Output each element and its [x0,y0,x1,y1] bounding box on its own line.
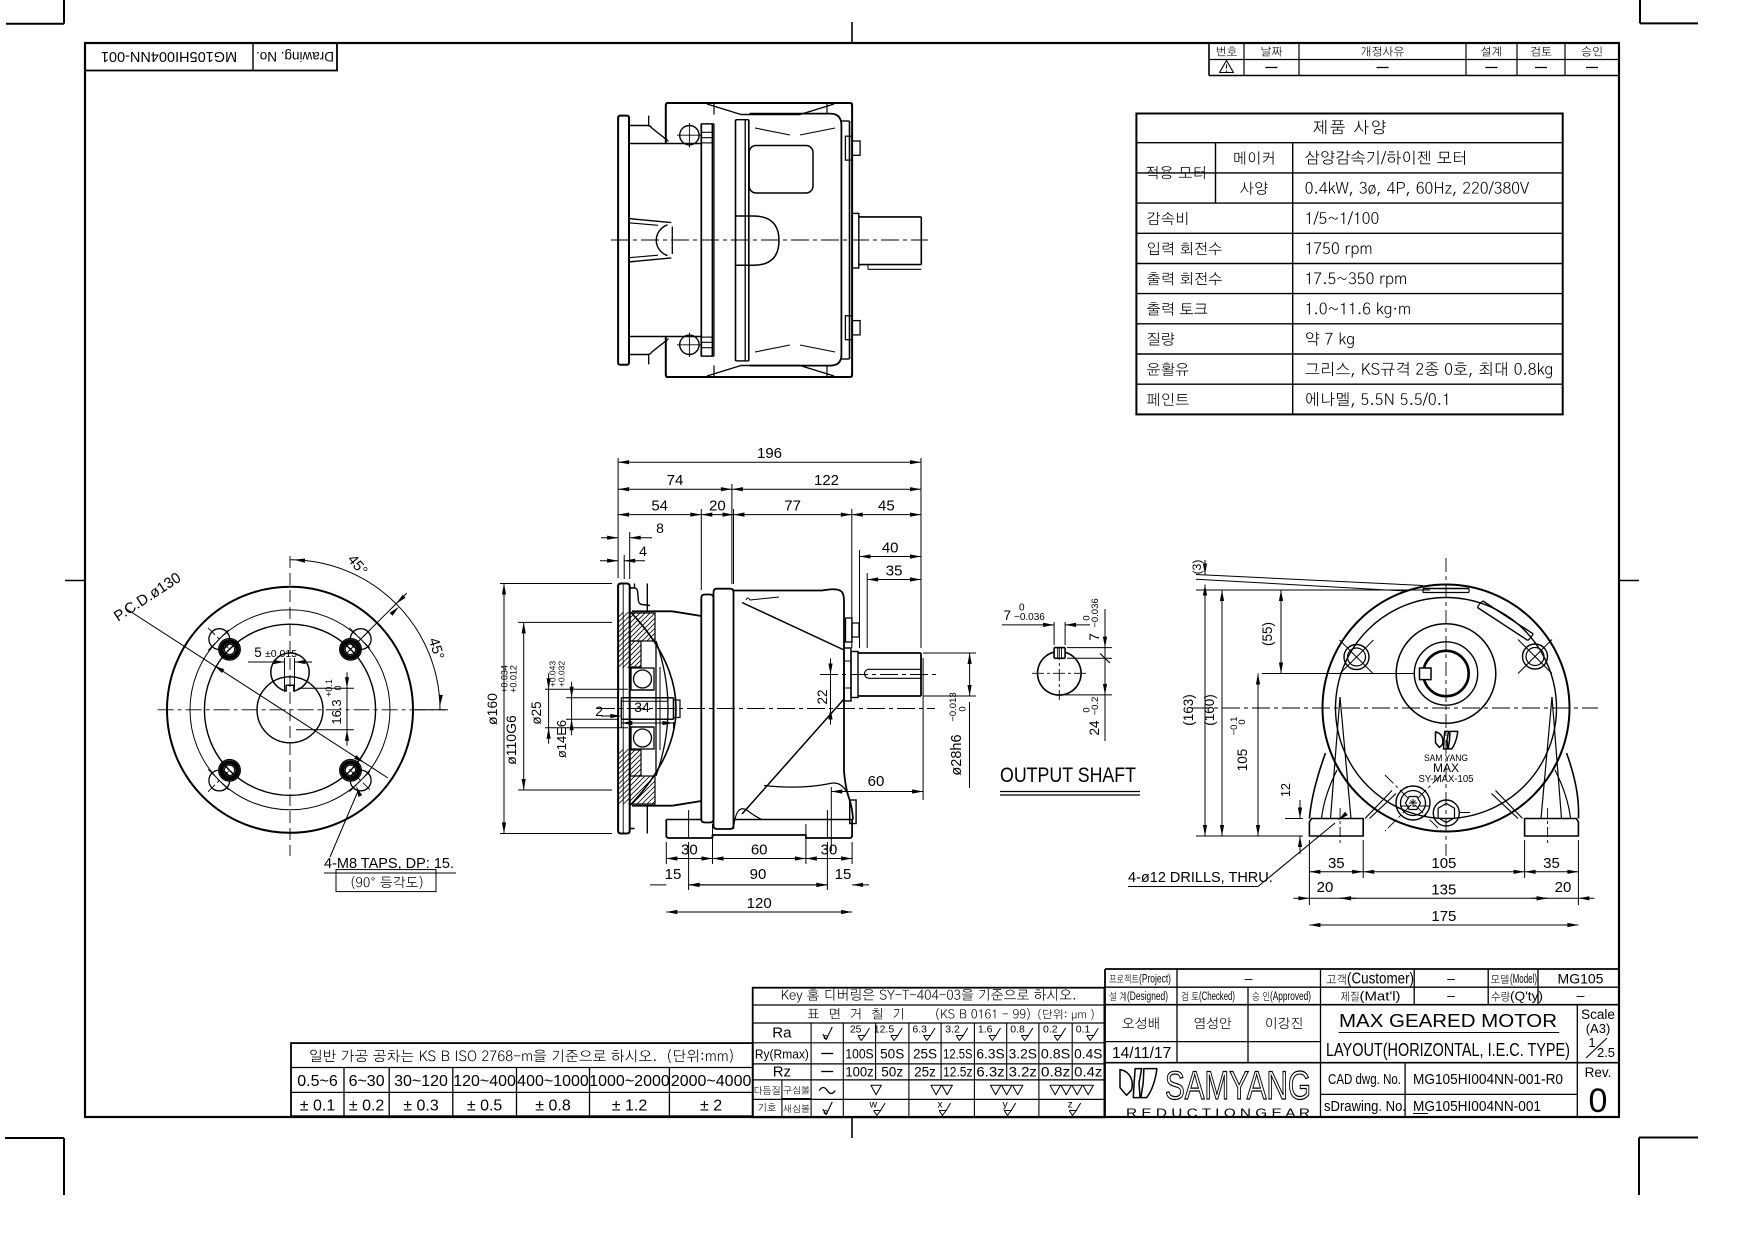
svg-text:Rev.: Rev. [1585,1065,1612,1080]
svg-text:175: 175 [1431,908,1456,925]
svg-text:16.3: 16.3 [329,699,344,724]
svg-text:50z: 50z [881,1065,903,1080]
svg-text:0: 0 [1082,707,1093,712]
svg-text:ø160: ø160 [484,693,500,725]
svg-text:Drawing. No.: Drawing. No. [256,49,334,64]
svg-text:4-ø12 DRILLS, THRU.: 4-ø12 DRILLS, THRU. [1128,870,1273,886]
svg-text:0.8S: 0.8S [1041,1047,1070,1062]
svg-text:105: 105 [1235,749,1250,772]
svg-text:ø25: ø25 [529,701,544,724]
svg-text:± 0.2: ± 0.2 [349,1098,385,1115]
svg-text:54: 54 [651,498,668,515]
svg-text:35: 35 [886,563,903,580]
svg-text:± 0.1: ± 0.1 [300,1098,336,1115]
svg-text:0: 0 [1237,719,1248,724]
svg-text:30: 30 [681,842,698,859]
svg-text:35: 35 [1328,855,1345,872]
svg-text:ø28h6: ø28h6 [949,734,965,775]
svg-text:(Mat'l): (Mat'l) [1360,989,1401,1004]
svg-text:± 0.3: ± 0.3 [403,1098,439,1115]
svg-text:(55): (55) [1260,622,1275,646]
svg-text:ø110G6: ø110G6 [503,715,519,765]
svg-text:Rz: Rz [773,1064,791,1081]
svg-text:0.8: 0.8 [1010,1024,1025,1036]
svg-text:+0.012: +0.012 [509,665,519,693]
svg-text:50S: 50S [880,1047,904,1062]
svg-text:35: 35 [1543,855,1560,872]
svg-text:R E D U C T I O N G E A R: R E D U C T I O N G E A R [1126,1106,1310,1120]
svg-text:25S: 25S [913,1047,937,1062]
svg-text:(163): (163) [1181,694,1196,726]
svg-text:14/11/17: 14/11/17 [1112,1045,1171,1062]
svg-text:(Model): (Model) [1510,972,1537,986]
svg-text:1.6: 1.6 [978,1024,993,1036]
svg-text:+0.032: +0.032 [557,661,567,688]
svg-text:0.4S: 0.4S [1074,1047,1102,1062]
svg-text:Scale: Scale [1581,1007,1615,1022]
svg-text:6~30: 6~30 [349,1073,385,1090]
svg-text:0.5~6: 0.5~6 [297,1073,338,1090]
svg-text:MG105HI004NN-001: MG105HI004NN-001 [101,48,237,64]
svg-text:± 2: ± 2 [700,1098,722,1115]
svg-text:± 1.2: ± 1.2 [612,1098,648,1115]
svg-text:25z: 25z [914,1065,936,1080]
svg-text:20: 20 [1317,879,1334,896]
svg-text:100z: 100z [845,1065,874,1080]
svg-text:CAD dwg. No.: CAD dwg. No. [1328,1072,1401,1088]
svg-text:6.3: 6.3 [912,1024,927,1036]
svg-text:400~1000: 400~1000 [517,1073,589,1090]
svg-text:Ry(Rmax): Ry(Rmax) [755,1047,809,1062]
svg-text:3.2S: 3.2S [1009,1047,1037,1062]
svg-text:0.4z: 0.4z [1074,1065,1102,1080]
svg-text:7: 7 [1003,608,1011,623]
svg-text:(3): (3) [1190,560,1204,575]
svg-text:MAX GEARED MOTOR: MAX GEARED MOTOR [1339,1010,1557,1031]
svg-text:34: 34 [634,699,650,715]
svg-text:x: x [937,1099,943,1111]
svg-text:MG105: MG105 [1558,971,1604,987]
svg-text:7: 7 [1087,633,1102,641]
svg-text:(Customer): (Customer) [1347,971,1414,988]
svg-text:(160): (160) [1202,694,1217,726]
svg-text:2: 2 [595,703,603,719]
svg-text:(Designed): (Designed) [1127,991,1168,1003]
svg-text:135: 135 [1431,881,1456,898]
svg-text:24: 24 [1087,720,1102,736]
svg-text:MG105HI004NN-001: MG105HI004NN-001 [1413,1099,1541,1115]
svg-text:196: 196 [757,445,782,462]
svg-text:60: 60 [868,773,885,790]
svg-text:77: 77 [784,498,801,515]
svg-text:–: – [1245,970,1253,986]
svg-text:0.8z: 0.8z [1041,1065,1071,1080]
svg-text:60: 60 [751,842,768,859]
svg-text:Ra: Ra [772,1025,792,1042]
svg-text:OUTPUT SHAFT: OUTPUT SHAFT [1000,763,1136,787]
svg-text:20: 20 [1555,879,1572,896]
svg-text:SAMYANG: SAMYANG [1165,1064,1311,1108]
svg-text:6.3S: 6.3S [976,1047,1004,1062]
svg-text:12: 12 [1279,783,1293,797]
svg-text:12.5z: 12.5z [943,1065,973,1080]
svg-text:74: 74 [667,472,684,489]
svg-text:22: 22 [815,689,830,704]
svg-text:120~400: 120~400 [453,1073,516,1090]
svg-text:20: 20 [709,498,726,515]
svg-text:15: 15 [665,866,682,883]
svg-text:0: 0 [1589,1082,1608,1120]
svg-text:–: – [1577,987,1585,1003]
svg-text:1000~2000: 1000~2000 [589,1073,670,1090]
svg-text:120: 120 [747,895,772,912]
svg-text:–: – [1447,970,1455,986]
svg-text:±0.015: ±0.015 [265,648,297,660]
svg-text:1: 1 [1588,1035,1595,1050]
svg-text:LAYOUT(HORIZONTAL, I.E.C. TYPE: LAYOUT(HORIZONTAL, I.E.C. TYPE) [1326,1040,1570,1060]
svg-text:3.2z: 3.2z [1009,1065,1037,1080]
svg-text:30~120: 30~120 [394,1073,448,1090]
svg-text:45: 45 [878,498,895,515]
svg-text:−0.036: −0.036 [1090,598,1101,627]
svg-text:122: 122 [814,472,839,489]
svg-text:15: 15 [835,866,852,883]
svg-text:sDrawing. No.: sDrawing. No. [1324,1099,1406,1115]
svg-text:8: 8 [656,520,664,536]
svg-text:± 0.5: ± 0.5 [467,1098,503,1115]
svg-text:3.2: 3.2 [945,1024,960,1036]
svg-text:−0.036: −0.036 [1014,612,1045,623]
svg-text:ø14E6: ø14E6 [554,720,569,758]
svg-text:2.5: 2.5 [1597,1045,1615,1060]
svg-text:0: 0 [333,685,343,690]
svg-text:y: y [1002,1099,1008,1111]
svg-text:(Approved): (Approved) [1270,991,1311,1003]
svg-text:25: 25 [850,1024,862,1036]
svg-text:± 0.8: ± 0.8 [535,1098,571,1115]
svg-text:4: 4 [639,543,647,559]
svg-text:w: w [869,1099,878,1111]
svg-text:6.3z: 6.3z [976,1065,1005,1080]
svg-text:0.2: 0.2 [1043,1024,1058,1036]
svg-text:40: 40 [882,540,899,557]
svg-text:100S: 100S [845,1047,873,1062]
svg-text:–: – [1447,987,1455,1003]
svg-text:0: 0 [1082,615,1093,620]
svg-text:30: 30 [821,842,838,859]
svg-text:(A3): (A3) [1586,1021,1611,1036]
svg-text:z: z [1067,1099,1072,1111]
svg-text:(Q'ty): (Q'ty) [1510,989,1543,1004]
svg-text:0: 0 [1019,603,1025,614]
svg-text:12.5S: 12.5S [943,1047,972,1062]
svg-text:MG105HI004NN-001-R0: MG105HI004NN-001-R0 [1413,1072,1563,1088]
svg-text:(Checked): (Checked) [1199,991,1235,1003]
svg-text:0.1: 0.1 [1076,1024,1091,1036]
svg-text:2000~4000: 2000~4000 [671,1073,752,1090]
svg-text:0: 0 [958,706,969,711]
svg-text:90: 90 [750,866,767,883]
svg-text:5: 5 [254,645,262,660]
svg-text:(Project): (Project) [1139,972,1171,986]
svg-text:12.5: 12.5 [874,1024,895,1036]
svg-text:105: 105 [1431,855,1456,872]
